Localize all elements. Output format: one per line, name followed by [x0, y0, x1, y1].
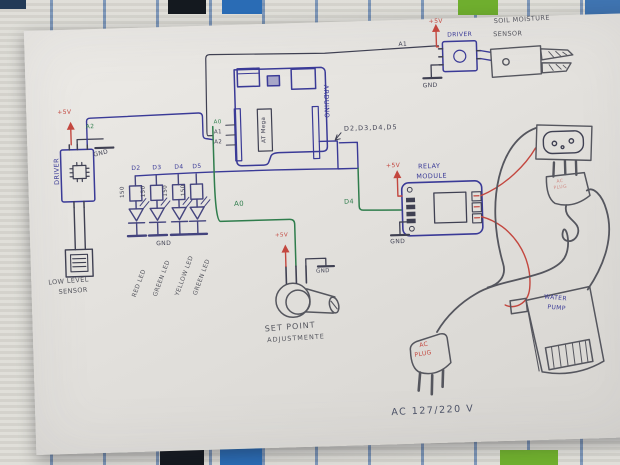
- a2-wire-label: A2: [86, 124, 95, 130]
- wire-a0-label: A0: [234, 201, 244, 208]
- relay-power-gnd: [389, 170, 409, 236]
- gnd-label-leds: GND: [156, 241, 171, 247]
- led-pin-d4: D4: [172, 164, 186, 170]
- wire-a2: [86, 113, 212, 145]
- soil-sensor-label-2: SENSOR: [493, 30, 522, 37]
- soil-driver-power-gnd: [422, 24, 442, 79]
- plus5v-label-soil-driver: +5V: [429, 19, 443, 25]
- ground-icon: [423, 78, 441, 79]
- paper-sheet: +5V A2 DRIVER GND LOW LEVEL SENSOR D2 D3…: [24, 13, 620, 455]
- relay-label-2: MODULE: [416, 173, 447, 180]
- resistor-value-3: 150: [164, 185, 170, 197]
- towel-patch-black-top: [168, 0, 206, 14]
- led-pin-d2: D2: [129, 166, 143, 172]
- wire-a0: [213, 124, 296, 268]
- pin-label-a0: A0: [214, 120, 222, 126]
- resistor-value-2: 150: [142, 185, 148, 197]
- pin-label-a1: A1: [214, 130, 222, 136]
- towel-patch-green-top: [458, 0, 498, 15]
- photo-of-hand-drawn-circuit: +5V A2 DRIVER GND LOW LEVEL SENSOR D2 D3…: [0, 0, 620, 465]
- mains-red-wires: [480, 148, 541, 307]
- towel-patch-blue-bottom: [220, 448, 262, 465]
- ic-chip-icon: [70, 162, 90, 182]
- left-driver-drawing: [60, 144, 95, 208]
- low-level-sensor-drawing: [64, 207, 93, 277]
- relay-module-drawing: [402, 181, 484, 236]
- plus5v-label-left-driver: +5V: [57, 110, 71, 116]
- atmega-label: AT Mega: [262, 110, 269, 150]
- wire-d4-label: D4: [344, 198, 354, 205]
- led-bus-wire: [135, 168, 339, 176]
- ground-icon: [391, 235, 409, 236]
- resistor-value-4: 150: [182, 184, 188, 196]
- wall-socket-drawing: [535, 123, 593, 162]
- power-cables: [431, 126, 612, 332]
- digital-bundle-label: D2,D3,D4,D5: [344, 124, 398, 132]
- plus5v-label-relay: +5V: [386, 163, 400, 169]
- plus5v-arrow-icon: [432, 24, 440, 32]
- component-icon: [267, 76, 279, 86]
- pot-power-gnd: [281, 243, 334, 268]
- towel-patch-navy-topleft: [0, 0, 26, 9]
- usb-port-icon: [237, 68, 260, 87]
- gnd-label-pot: GND: [316, 269, 330, 275]
- wire-a1-label: A1: [398, 42, 407, 48]
- potentiometer-drawing: [275, 265, 341, 318]
- relay-input-pins: [406, 198, 416, 224]
- soil-sensor-drawing: [491, 45, 574, 77]
- gnd-label-relay: GND: [390, 239, 405, 245]
- arduino-board-drawing: [224, 66, 328, 166]
- relay-label-1: RELAY: [418, 163, 440, 170]
- upper-plug-drawing: [546, 159, 590, 205]
- ac-plug-drawing: [410, 333, 452, 394]
- led-pin-d5: D5: [190, 164, 204, 170]
- gnd-label-soil-driver: GND: [423, 83, 438, 89]
- power-jack-icon: [291, 69, 316, 90]
- led-branch: [187, 174, 211, 235]
- resistor-value-1: 150: [121, 186, 127, 198]
- plus5v-arrow-icon: [67, 122, 75, 130]
- led-pin-d3: D3: [150, 165, 164, 171]
- pin-label-a2: A2: [214, 140, 222, 146]
- plus5v-arrow-icon: [393, 170, 401, 178]
- towel-patch-green-bottom: [500, 450, 558, 465]
- soil-driver-drawing: [438, 40, 491, 72]
- towel-patch-blue-top: [222, 0, 262, 14]
- soil-driver-label: DRIVER: [447, 32, 472, 39]
- plus5v-label-pot: +5V: [275, 233, 288, 239]
- plus5v-arrow-icon: [281, 244, 289, 252]
